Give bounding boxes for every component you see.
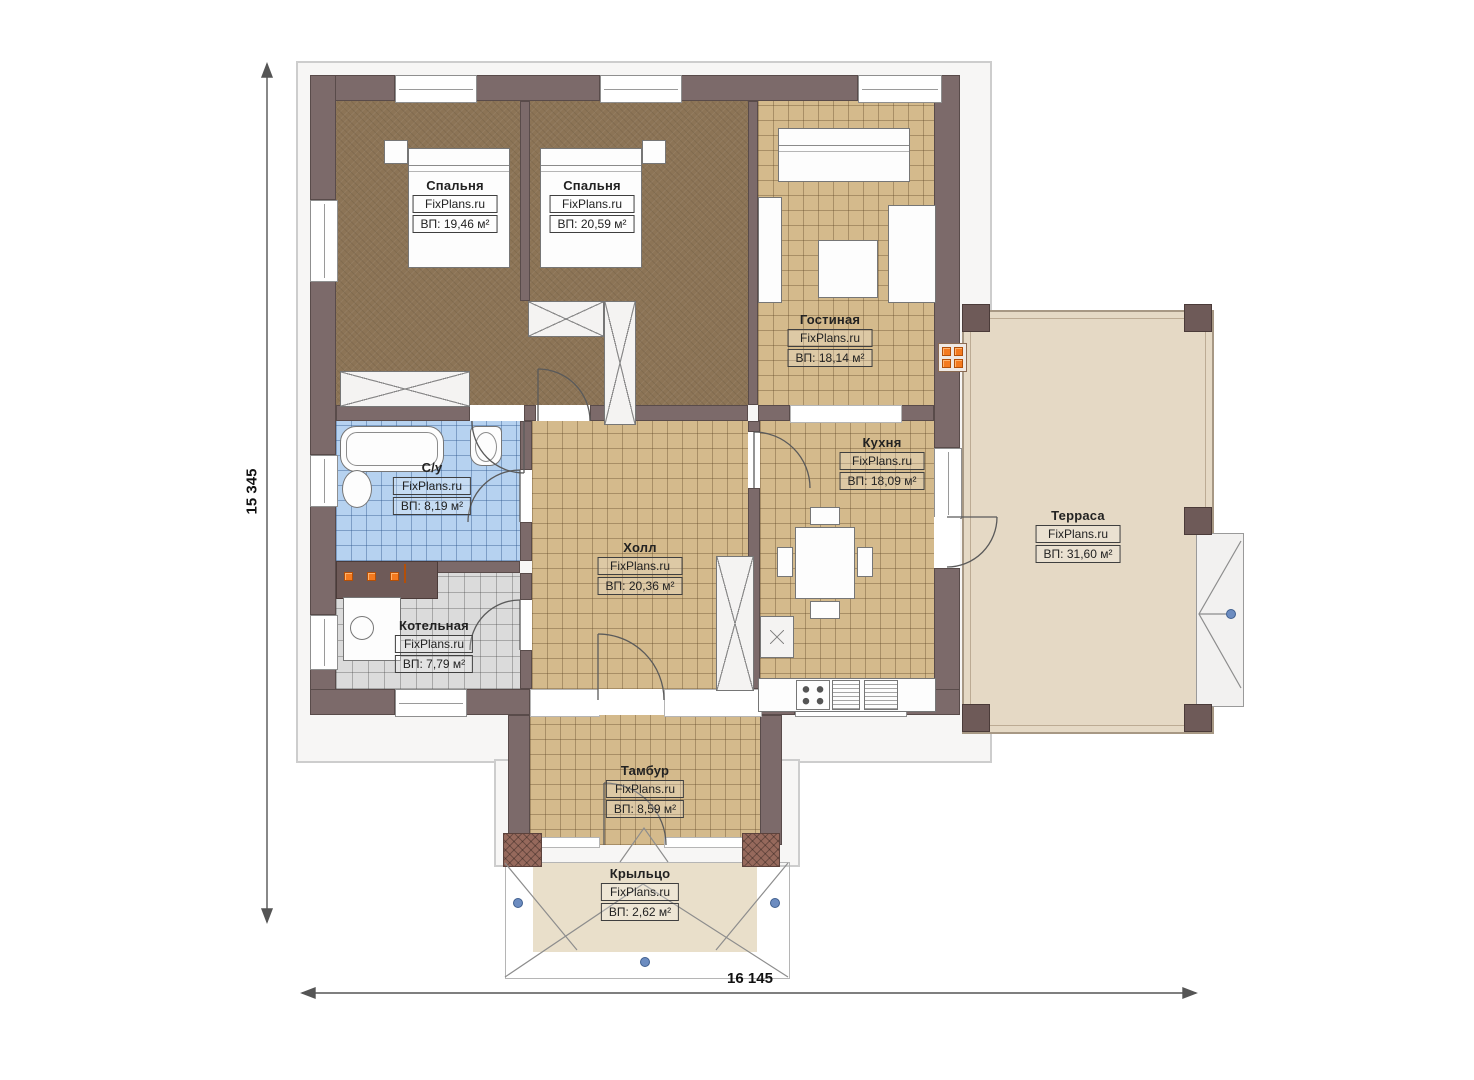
cased-opening: [790, 405, 902, 423]
window: [310, 200, 338, 282]
room-label-vestibule: Тамбур FixPlans.ru ВП: 8,59 м²: [606, 763, 684, 818]
room-name: Котельная: [395, 618, 473, 633]
window: [310, 455, 338, 507]
sink: [342, 470, 372, 508]
wardrobe: [340, 371, 470, 407]
door-opening: [598, 689, 664, 715]
nightstand: [384, 140, 408, 164]
room-label-bedroom-2: Спальня FixPlans.ru ВП: 20,59 м²: [550, 178, 635, 233]
room-name: С/у: [393, 460, 471, 475]
chair: [777, 547, 793, 577]
room-name: Кухня: [840, 435, 925, 450]
wall-segment: [520, 573, 532, 600]
brand-watermark: FixPlans.ru: [601, 883, 679, 901]
room-label-boiler: Котельная FixPlans.ru ВП: 7,79 м²: [395, 618, 473, 673]
toilet: [470, 426, 502, 466]
cased-opening: [533, 837, 600, 848]
dimension-height: 15 345: [244, 452, 261, 532]
chair: [810, 601, 840, 619]
valve-dot: [390, 572, 399, 581]
radiator-dot: [954, 347, 963, 356]
wall-segment: [310, 280, 336, 455]
stove: [796, 680, 830, 710]
loveseat: [888, 205, 936, 303]
dining-table: [795, 527, 855, 599]
room-area: ВП: 31,60 м²: [1036, 545, 1121, 563]
room-label-terrace: Терраса FixPlans.ru ВП: 31,60 м²: [1036, 508, 1121, 563]
room-label-kitchen: Кухня FixPlans.ru ВП: 18,09 м²: [840, 435, 925, 490]
wall-segment: [524, 405, 536, 421]
radiator-dot: [954, 359, 963, 368]
wall-living-divider: [748, 101, 758, 405]
wall-segment: [310, 505, 336, 615]
terrace-post: [1184, 704, 1212, 732]
door-opening: [748, 432, 760, 488]
wall-segment: [900, 405, 934, 421]
wall-segment: [310, 75, 336, 200]
wardrobe: [604, 301, 636, 425]
room-name: Гостиная: [788, 312, 873, 327]
window: [600, 75, 682, 103]
wall-segment: [475, 75, 600, 101]
wall-segment: [465, 689, 530, 715]
window: [858, 75, 942, 103]
wardrobe: [528, 301, 604, 337]
brand-watermark: FixPlans.ru: [413, 195, 498, 213]
room-label-hall: Холл FixPlans.ru ВП: 20,36 м²: [598, 540, 683, 595]
brand-watermark: FixPlans.ru: [598, 557, 683, 575]
wall-segment: [520, 421, 532, 470]
brand-watermark: FixPlans.ru: [840, 452, 925, 470]
wall-segment: [748, 421, 760, 432]
room-label-bathroom: С/у FixPlans.ru ВП: 8,19 м²: [393, 460, 471, 515]
room-label-living: Гостиная FixPlans.ru ВП: 18,14 м²: [788, 312, 873, 367]
heating-manifold: [344, 572, 399, 581]
chair: [857, 547, 873, 577]
window: [395, 689, 467, 717]
room-label-porch: Крыльцо FixPlans.ru ВП: 2,62 м²: [601, 866, 679, 921]
room-area: ВП: 20,59 м²: [550, 215, 635, 233]
brand-watermark: FixPlans.ru: [550, 195, 635, 213]
vent-shaft: [716, 556, 754, 691]
room-area: ВП: 19,46 м²: [413, 215, 498, 233]
chair: [810, 507, 840, 525]
door-opening: [520, 600, 532, 650]
dimension-width: 16 145: [700, 970, 800, 987]
window: [395, 75, 477, 103]
room-area: ВП: 18,09 м²: [840, 472, 925, 490]
sofa: [778, 128, 910, 182]
terrace-post: [1184, 507, 1212, 535]
wall-segment: [680, 75, 858, 101]
wall-bedroom-divider: [520, 101, 530, 301]
porch-brick-post: [503, 833, 542, 867]
brand-watermark: FixPlans.ru: [1036, 525, 1121, 543]
room-name: Терраса: [1036, 508, 1121, 523]
window: [310, 615, 338, 670]
coffee-table: [818, 240, 878, 298]
room-area: ВП: 20,36 м²: [598, 577, 683, 595]
kitchen-sink: [760, 616, 794, 658]
brand-watermark: FixPlans.ru: [788, 329, 873, 347]
valve-dot: [404, 564, 406, 583]
door-opening: [536, 405, 590, 421]
cased-opening: [664, 689, 762, 717]
wall-segment: [758, 405, 790, 421]
room-name: Спальня: [413, 178, 498, 193]
wall-segment: [520, 522, 532, 561]
boiler-unit: [343, 597, 401, 661]
wall-segment: [934, 75, 960, 448]
wall-segment: [508, 715, 530, 845]
terrace-stairs: [1196, 533, 1244, 707]
radiator: [938, 343, 967, 372]
valve-dot: [344, 572, 353, 581]
wall-segment: [760, 715, 782, 845]
door-opening: [520, 470, 532, 522]
floor-plan-canvas: 15 345 16 145 Спальня FixPlans.ru ВП: 19…: [0, 0, 1474, 1080]
heating-manifold: [404, 565, 406, 583]
wall-segment: [310, 689, 395, 715]
radiator-dot: [942, 347, 951, 356]
room-name: Спальня: [550, 178, 635, 193]
wall-segment: [520, 650, 532, 689]
cased-opening: [530, 689, 600, 717]
room-name: Холл: [598, 540, 683, 555]
door-opening: [934, 517, 960, 568]
room-name: Крыльцо: [601, 866, 679, 881]
room-area: ВП: 7,79 м²: [395, 655, 473, 673]
porch-brick-post: [742, 833, 780, 867]
tv-stand: [758, 197, 782, 303]
terrace-post: [962, 304, 990, 332]
door-opening: [470, 405, 524, 421]
radiator-dot: [942, 359, 951, 368]
nightstand: [642, 140, 666, 164]
room-name: Тамбур: [606, 763, 684, 778]
terrace-post: [962, 704, 990, 732]
room-area: ВП: 18,14 м²: [788, 349, 873, 367]
wall-segment: [336, 405, 470, 421]
window: [934, 448, 962, 519]
room-label-bedroom-1: Спальня FixPlans.ru ВП: 19,46 м²: [413, 178, 498, 233]
brand-watermark: FixPlans.ru: [606, 780, 684, 798]
valve-dot: [367, 572, 376, 581]
appliance: [832, 680, 860, 710]
room-area: ВП: 2,62 м²: [601, 903, 679, 921]
fridge: [864, 680, 898, 710]
brand-watermark: FixPlans.ru: [395, 635, 473, 653]
room-area: ВП: 8,59 м²: [606, 800, 684, 818]
room-area: ВП: 8,19 м²: [393, 497, 471, 515]
brand-watermark: FixPlans.ru: [393, 477, 471, 495]
terrace-post: [1184, 304, 1212, 332]
